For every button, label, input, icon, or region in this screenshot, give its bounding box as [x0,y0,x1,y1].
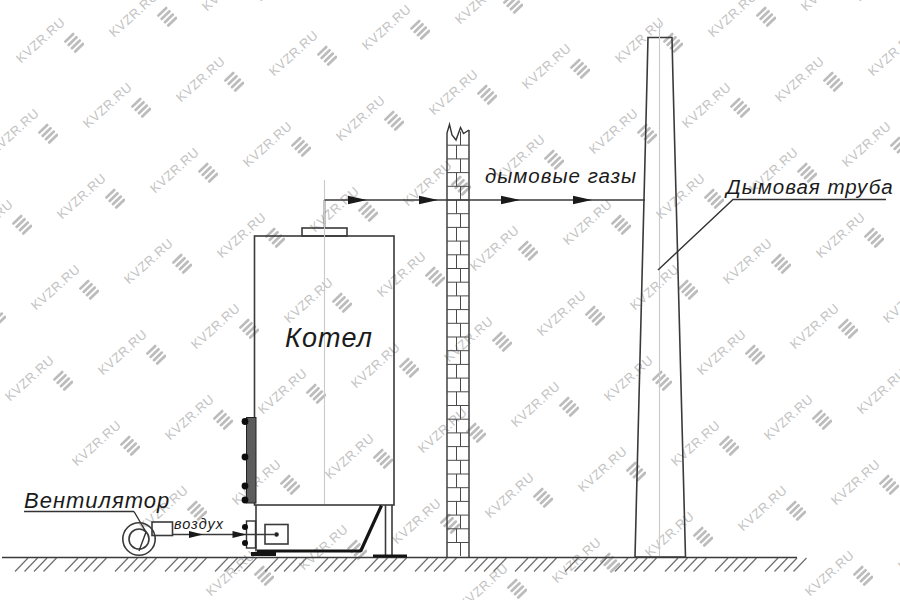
flange-bolt [242,540,248,546]
chimney-leader-line [658,200,886,271]
fan [123,522,173,555]
door-bolt [242,418,249,425]
boiler-chimney-diagram: Котел Вентилятор воздух дымовые газы Дым… [0,0,900,600]
burner-pivot-dot [274,532,279,537]
air-label: воздух [174,516,224,532]
wall-brick-courses [447,132,469,557]
chimney-label: Дымовая труба [724,175,893,198]
ground-hatch [15,558,807,572]
boiler-label: Котел [285,323,373,353]
flange-bolt [242,524,248,530]
door-bolt [242,497,249,504]
flue-gas-line [325,196,646,204]
flow-arrowhead [501,196,520,204]
flow-arrowhead [419,196,438,204]
flow-arrowhead [189,531,203,538]
door-bolt [242,483,249,490]
flow-arrowhead [348,196,367,204]
door-bolt [242,454,249,461]
flow-arrowhead [233,531,247,538]
hopper-slope [361,506,382,552]
brick-wall [447,125,469,558]
chimney [635,38,686,558]
ground [2,558,807,572]
air-line [173,531,275,538]
flue-gases-label: дымовые газы [485,164,637,187]
fan-label: Вентилятор [24,488,170,513]
wall-break-line [447,125,469,141]
chimney-outline [635,38,686,558]
boiler-side-door [247,418,257,504]
flow-arrowhead [573,196,592,204]
schematic-canvas: KVZR.RUKVZR.RUKVZR.RUKVZR.RUKVZR.RUKVZR.… [0,0,900,600]
